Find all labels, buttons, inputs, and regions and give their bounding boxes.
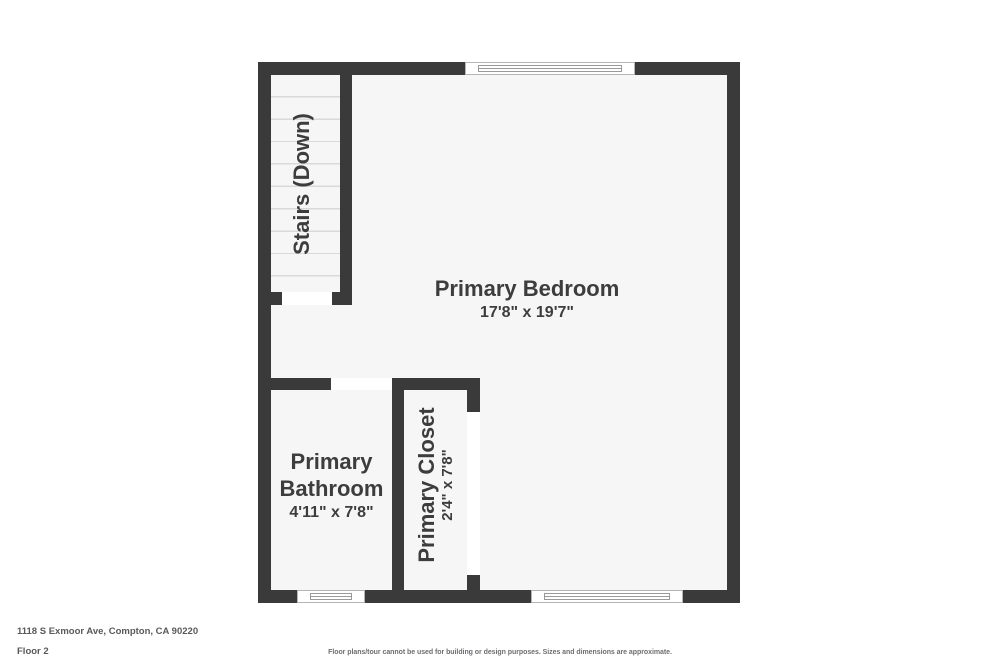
wall-bathroom-top [258,378,331,390]
stairs-door-opening [282,292,332,305]
wall-bath-closet-divider [392,378,404,603]
closet-label: Primary Closet 2'4" x 7'8" [415,407,457,562]
closet-name: Primary Closet [415,407,439,562]
closet-dimensions: 2'4" x 7'8" [439,449,457,520]
bathroom-label: Primary Bathroom 4'11" x 7'8" [271,448,392,524]
bathroom-dimensions: 4'11" x 7'8" [271,502,392,524]
window-bathroom-bottom [297,590,365,603]
footer-disclaimer: Floor plans/tour cannot be used for buil… [328,649,672,656]
closet-door-opening [467,412,480,575]
wall-stairs-right [340,62,352,305]
wall-left [258,62,271,603]
bedroom-label: Primary Bedroom 17'8" x 19'7" [352,275,702,324]
footer-floor-label: Floor 2 [17,646,49,657]
floor-plan: Primary Bedroom 17'8" x 19'7" Primary Ba… [258,62,740,603]
wall-right [727,62,740,603]
wall-stairs-bottom-left [258,292,282,305]
window-bedroom-bottom [531,590,683,603]
wall-closet-right-bottom-stub [467,575,480,603]
bathroom-door-opening [331,378,392,390]
footer-address: 1118 S Exmoor Ave, Compton, CA 90220 [17,626,198,637]
wall-closet-right-top-stub [467,378,480,412]
stairs-label: Stairs (Down) [289,113,315,255]
bedroom-name: Primary Bedroom [352,275,702,302]
bedroom-dimensions: 17'8" x 19'7" [352,302,702,324]
floorplan-page: Primary Bedroom 17'8" x 19'7" Primary Ba… [0,0,1000,667]
bathroom-name: Primary Bathroom [271,448,392,502]
wall-stairs-bottom-right [332,292,352,305]
window-bedroom-top [465,62,635,75]
